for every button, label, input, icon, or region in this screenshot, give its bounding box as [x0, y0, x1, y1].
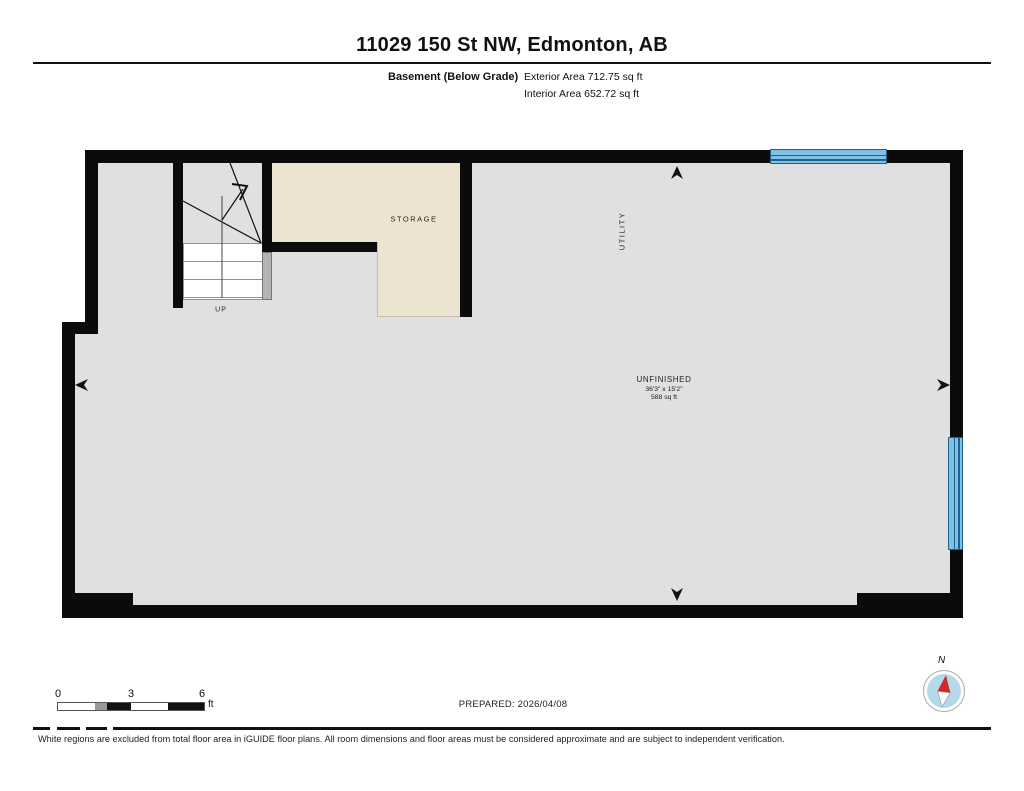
utility-room-label: UTILITY	[618, 212, 627, 250]
storage-floor-upper	[272, 163, 460, 242]
floor-plan: STORAGE UTILITY UNFINISHED 36'3" x 15'2"…	[0, 0, 1024, 660]
footer-divider	[57, 727, 80, 730]
window-top-icon	[770, 149, 887, 164]
footer-divider	[86, 727, 107, 730]
unfinished-room-name: UNFINISHED	[637, 375, 692, 384]
wall-bottom	[62, 605, 963, 618]
footer-divider	[113, 727, 991, 730]
wall-step-bottom-right	[857, 593, 963, 607]
storage-wall-right	[460, 163, 472, 317]
scale-unit-label: ft	[208, 699, 214, 710]
compass-needle-north	[937, 674, 952, 692]
unfinished-room-label: UNFINISHED 36'3" x 15'2" 588 sq ft	[637, 375, 692, 401]
compass-north-label: N	[938, 655, 945, 666]
scale-tick-3: 3	[128, 688, 134, 700]
disclaimer-text: White regions are excluded from total fl…	[38, 734, 998, 744]
compass-icon	[923, 670, 965, 712]
footer-divider	[33, 727, 50, 730]
storage-floor-lower	[377, 242, 460, 317]
storage-wall-horizontal	[262, 242, 377, 252]
scale-tick-6: 6	[199, 688, 205, 700]
scale-bar	[57, 702, 205, 711]
floor-area-lower	[75, 334, 950, 605]
wall-left-lower	[62, 322, 75, 618]
stair-treads	[183, 243, 263, 300]
window-right-icon	[948, 437, 963, 550]
unfinished-room-area: 588 sq ft	[637, 394, 692, 401]
stair-handrail	[262, 252, 272, 300]
stairs-up-label: UP	[215, 307, 227, 314]
floor-plan-page: 11029 150 St NW, Edmonton, AB Basement (…	[0, 0, 1024, 791]
storage-room-label: STORAGE	[390, 215, 437, 224]
wall-left-upper	[85, 150, 98, 334]
stair-wall-left	[173, 163, 183, 308]
prepared-date: PREPARED: 2026/04/08	[459, 699, 567, 710]
unfinished-room-dimensions: 36'3" x 15'2"	[637, 386, 692, 393]
scale-tick-0: 0	[55, 688, 61, 700]
stair-wall-right	[262, 163, 272, 252]
compass-needle-south	[936, 691, 951, 707]
